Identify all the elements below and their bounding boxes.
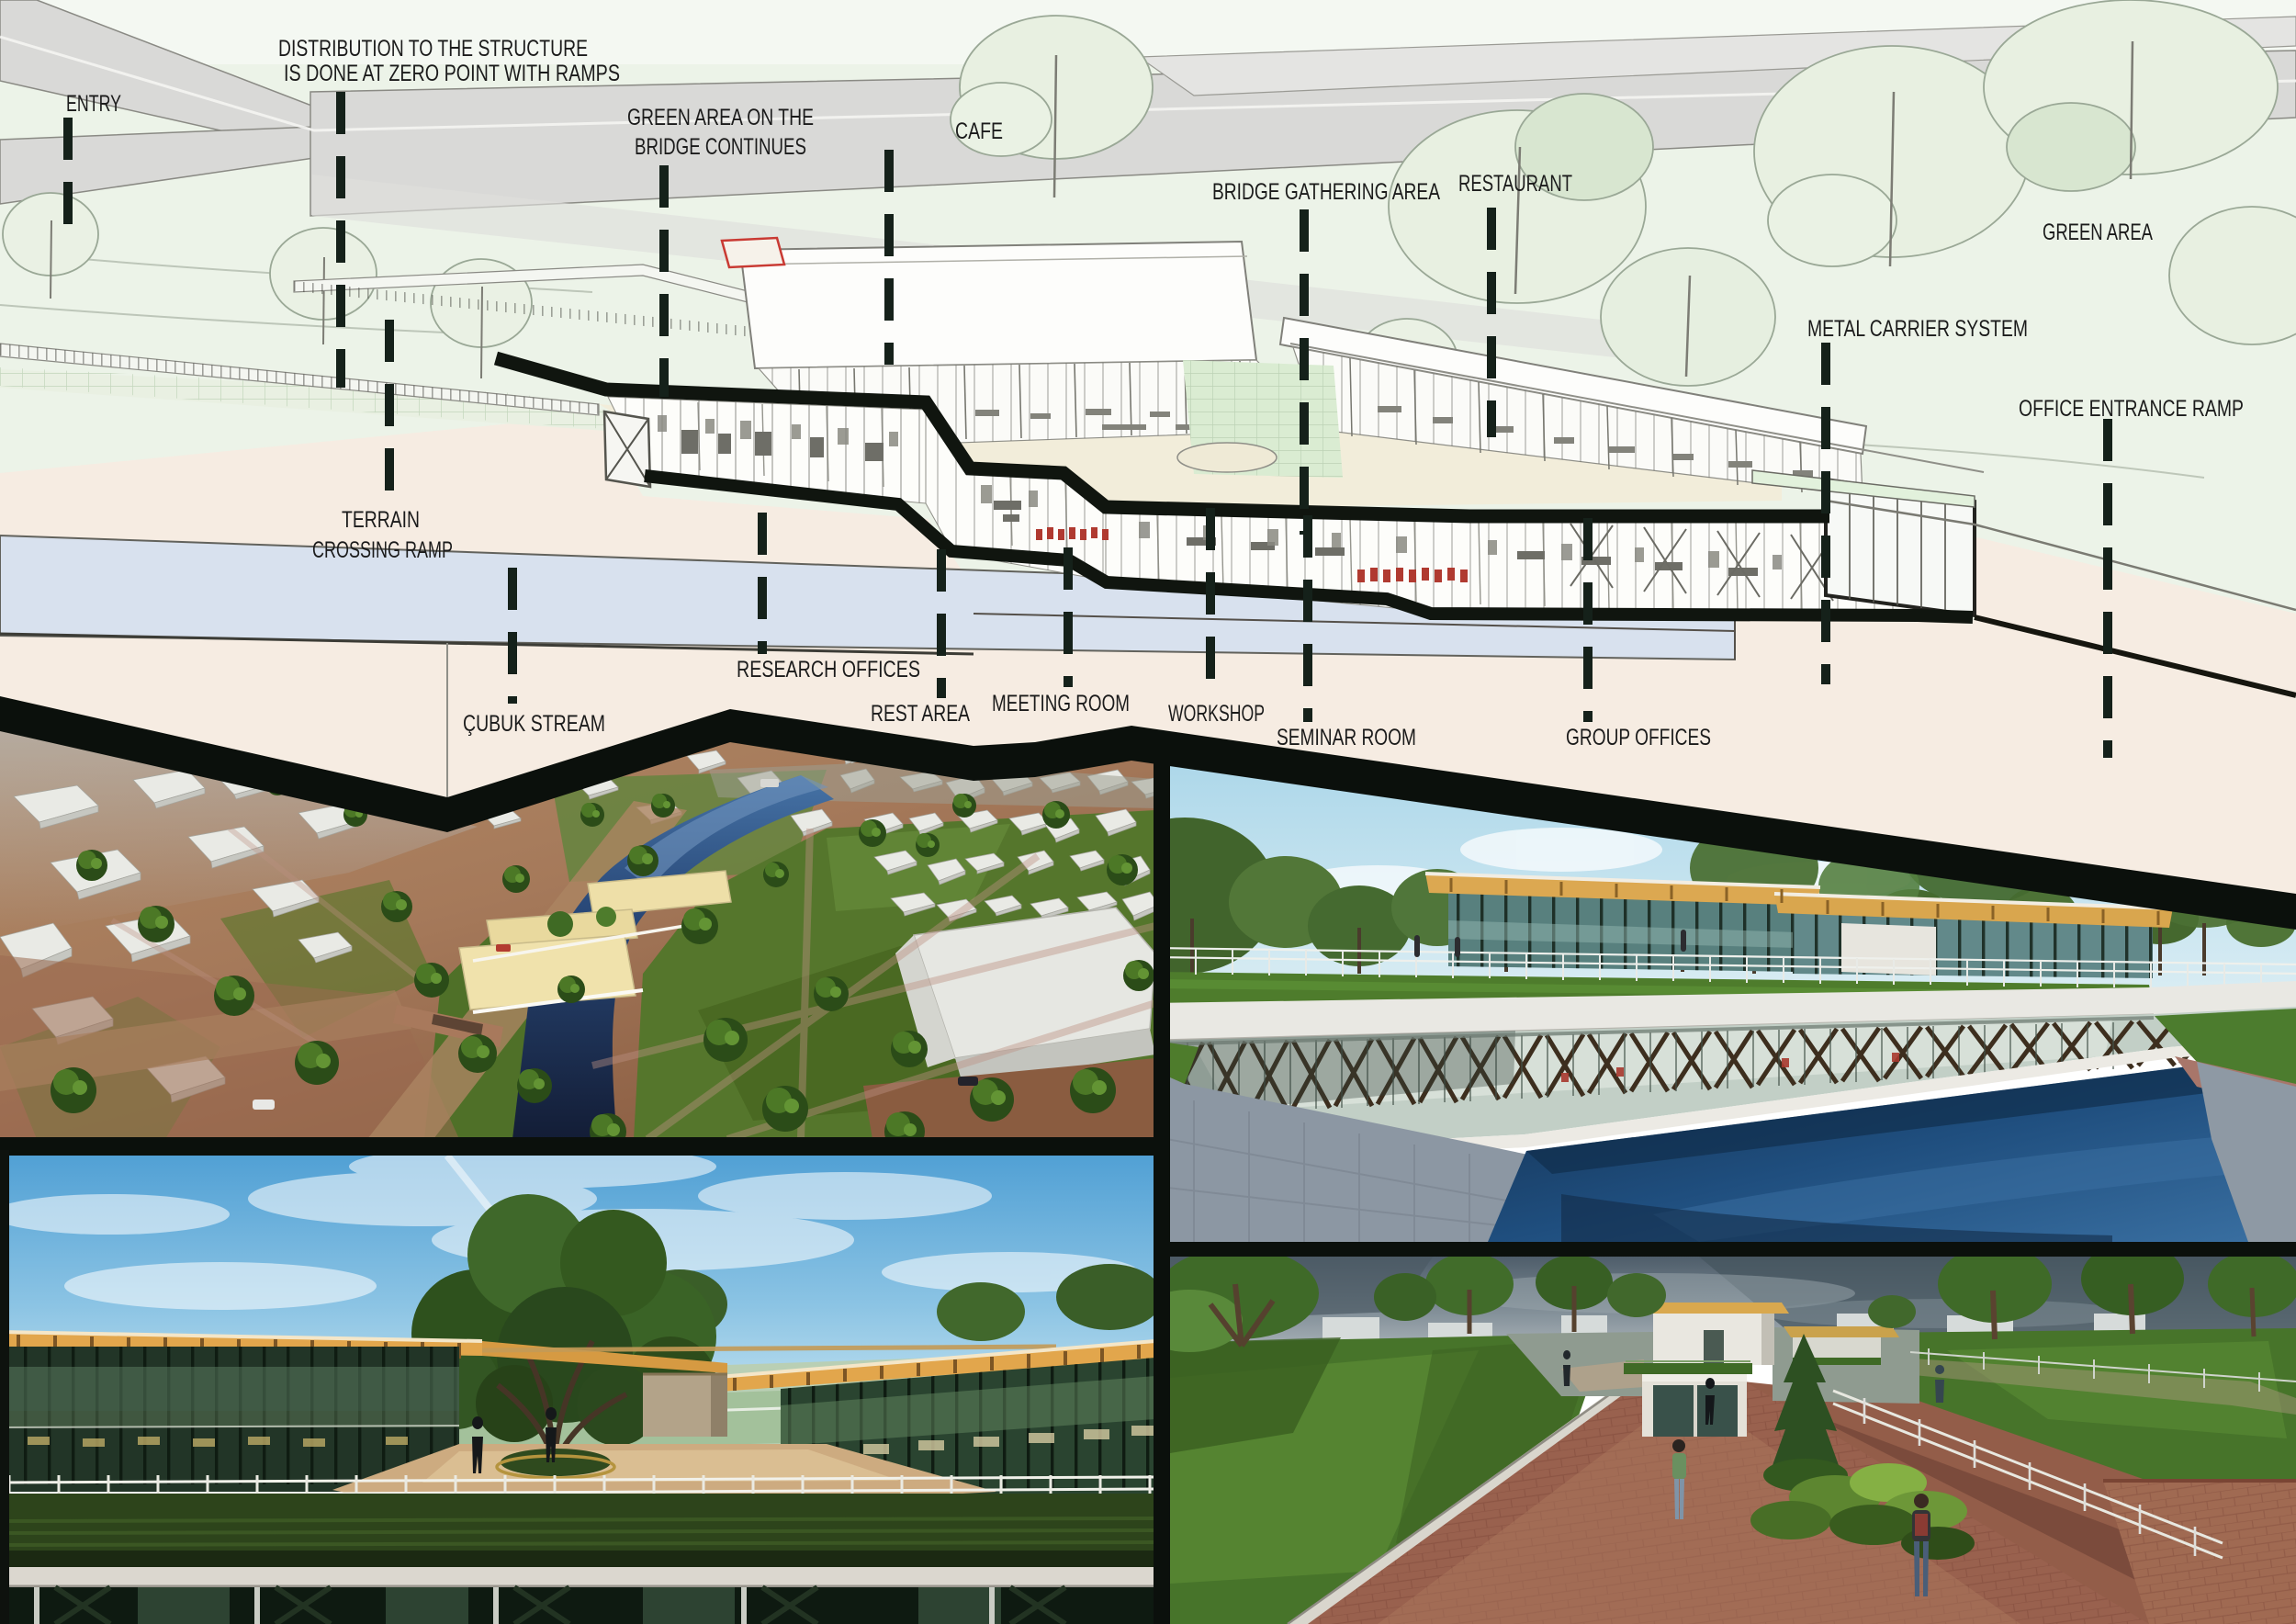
svg-text:MEETING ROOM: MEETING ROOM	[992, 691, 1130, 716]
svg-text:REST AREA: REST AREA	[871, 701, 970, 727]
svg-text:DISTRIBUTION TO THE STRUCTURE: DISTRIBUTION TO THE STRUCTURE	[278, 36, 588, 62]
svg-text:IS DONE AT ZERO POINT WITH RAM: IS DONE AT ZERO POINT WITH RAMPS	[284, 61, 620, 86]
svg-text:ÇUBUK STREAM: ÇUBUK STREAM	[463, 711, 605, 737]
svg-text:BRIDGE GATHERING AREA: BRIDGE GATHERING AREA	[1212, 179, 1440, 205]
svg-text:CAFE: CAFE	[955, 118, 1003, 144]
svg-text:METAL CARRIER SYSTEM: METAL CARRIER SYSTEM	[1807, 316, 2028, 342]
svg-text:ENTRY: ENTRY	[66, 91, 121, 117]
svg-text:GREEN AREA: GREEN AREA	[2043, 220, 2153, 245]
svg-text:TERRAIN: TERRAIN	[342, 507, 420, 533]
svg-text:RESEARCH OFFICES: RESEARCH OFFICES	[737, 657, 920, 682]
svg-text:BRIDGE CONTINUES: BRIDGE CONTINUES	[635, 134, 806, 160]
svg-text:GREEN AREA ON THE: GREEN AREA ON THE	[627, 105, 814, 130]
svg-text:GROUP OFFICES: GROUP OFFICES	[1566, 725, 1711, 750]
svg-text:SEMINAR ROOM: SEMINAR ROOM	[1277, 725, 1416, 750]
svg-text:CROSSING RAMP: CROSSING RAMP	[312, 537, 453, 563]
svg-text:WORKSHOP: WORKSHOP	[1168, 701, 1265, 727]
svg-text:RESTAURANT: RESTAURANT	[1458, 171, 1572, 197]
svg-text:OFFICE ENTRANCE RAMP: OFFICE ENTRANCE RAMP	[2019, 396, 2244, 422]
